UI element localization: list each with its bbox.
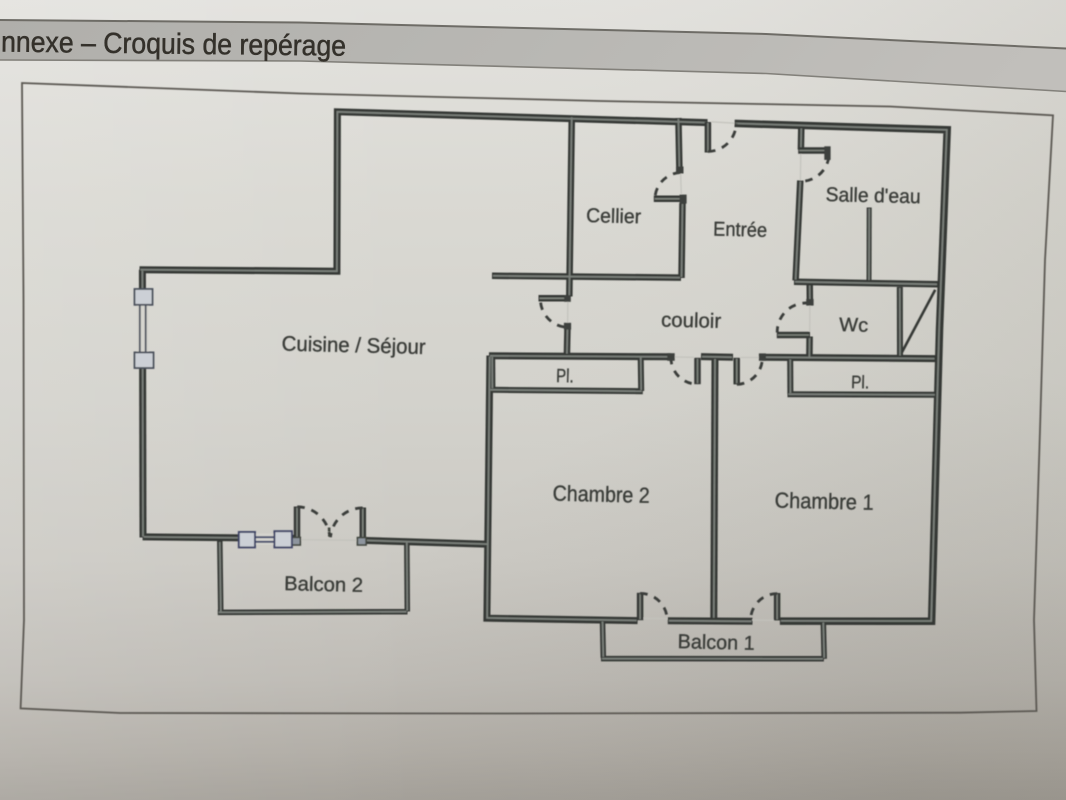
svg-text:Wc: Wc (839, 314, 869, 337)
svg-text:Pl.: Pl. (556, 366, 574, 387)
svg-text:couloir: couloir (661, 309, 722, 333)
svg-text:Pl.: Pl. (851, 372, 869, 392)
svg-text:nnexe – Croquis de repérage: nnexe – Croquis de repérage (1, 27, 346, 63)
svg-text:Salle d'eau: Salle d'eau (825, 184, 921, 208)
svg-text:Balcon 1: Balcon 1 (677, 631, 755, 655)
svg-text:Chambre 1: Chambre 1 (774, 488, 874, 515)
svg-text:Entrée: Entrée (713, 219, 768, 242)
svg-text:Balcon 2: Balcon 2 (284, 573, 364, 597)
svg-text:Cellier: Cellier (586, 205, 642, 228)
svg-text:Cuisine / Séjour: Cuisine / Séjour (281, 333, 426, 360)
svg-text:Chambre 2: Chambre 2 (552, 481, 650, 508)
